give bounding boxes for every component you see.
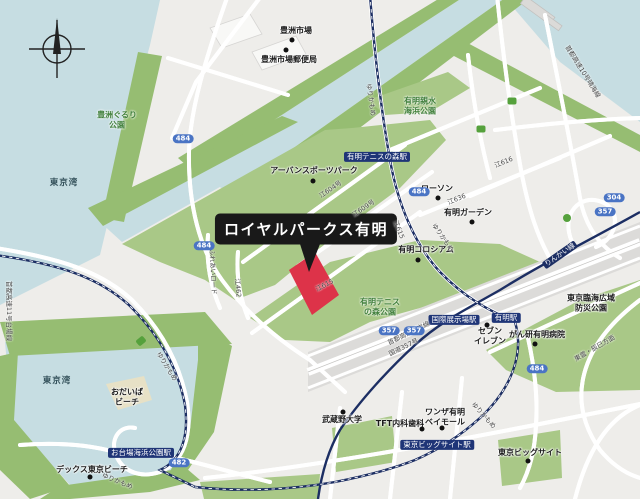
poi-urban-sports-park-dot (311, 179, 316, 184)
poi-musashino-university-dot (341, 410, 346, 415)
poi-tokyo-big-sight-dot (526, 459, 531, 464)
map-base-graphics (0, 0, 640, 499)
poi-ariake-coliseum-dot (416, 258, 421, 263)
poi-tft-clinic-dot (420, 427, 425, 432)
poi-decks-tokyo-beach-dot (88, 475, 93, 480)
property-callout: ロイヤルパークス有明 (215, 214, 397, 245)
poi-toyosu-market-dot (290, 38, 295, 43)
poi-seven-eleven-dot (485, 323, 490, 328)
poi-lawson-dot (436, 196, 441, 201)
poi-ganken-ariake-hospital-dot (533, 342, 538, 347)
poi-toyosu-post-office-dot (284, 48, 289, 53)
area-map-ariake: ロイヤルパークス有明 有明テニスの森駅国際展示場駅有明駅東京ビッグサイト駅お台場… (0, 0, 640, 499)
poi-ariake-garden-dot (470, 220, 475, 225)
poi-wanza-ariake-bay-mall-dot (440, 426, 445, 431)
